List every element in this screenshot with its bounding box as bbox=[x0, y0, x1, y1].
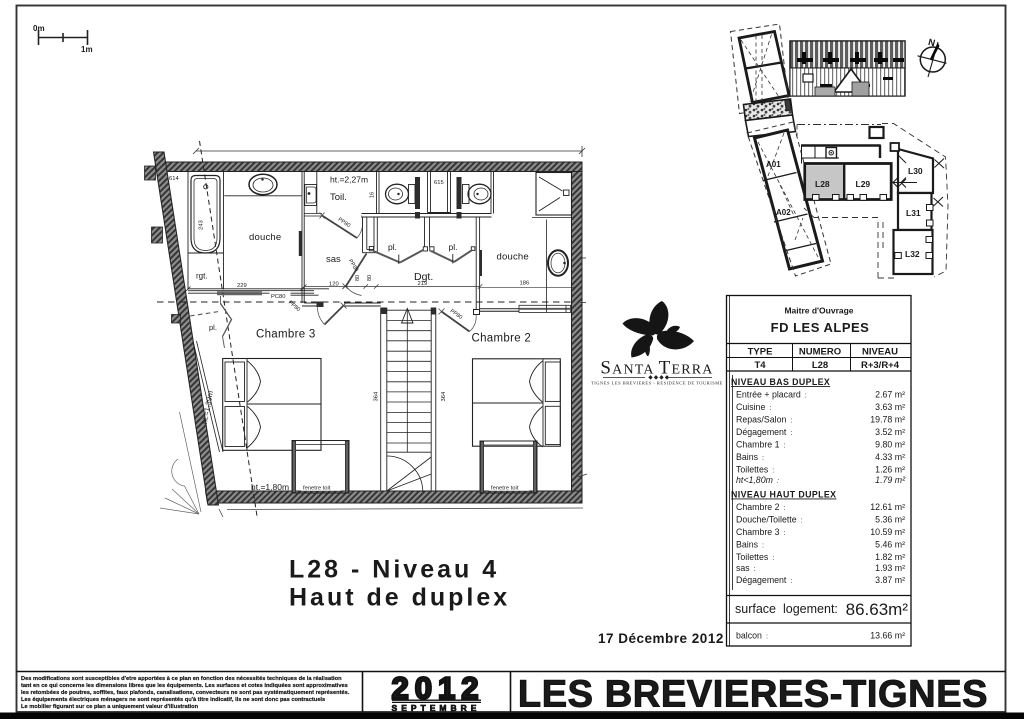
svg-text:rgt.: rgt. bbox=[196, 272, 208, 281]
svg-text:FD LES ALPES: FD LES ALPES bbox=[771, 320, 870, 335]
svg-text:R+3/R+4: R+3/R+4 bbox=[861, 360, 900, 371]
svg-text:3.52 m²: 3.52 m² bbox=[875, 427, 905, 437]
svg-text:Douche/Toilette:: Douche/Toilette: bbox=[736, 515, 803, 525]
svg-text:186: 186 bbox=[520, 281, 530, 287]
svg-text:19.78 m²: 19.78 m² bbox=[870, 415, 905, 425]
svg-text:TIGNES LES BREVIERES - RESIDEN: TIGNES LES BREVIERES - RESIDENCE DE TOUR… bbox=[591, 381, 723, 386]
svg-text:douche: douche bbox=[249, 232, 281, 243]
svg-text:TYPE: TYPE bbox=[748, 347, 773, 358]
svg-text:Haut de duplex: Haut de duplex bbox=[289, 584, 510, 612]
svg-text:10.59 m²: 10.59 m² bbox=[870, 527, 905, 537]
svg-text:3.87 m²: 3.87 m² bbox=[875, 575, 905, 585]
svg-text:Le mobilier figurant sur ce pl: Le mobilier figurant sur ce plan a uniqu… bbox=[21, 704, 199, 710]
svg-text:Dégagement:: Dégagement: bbox=[736, 575, 792, 585]
svg-text:243: 243 bbox=[199, 220, 205, 230]
svg-text:L30: L30 bbox=[908, 166, 923, 176]
svg-text:80: 80 bbox=[367, 275, 373, 281]
svg-text:Maitre d'Ouvrage: Maitre d'Ouvrage bbox=[784, 306, 853, 316]
svg-text:Chambre 2:: Chambre 2: bbox=[736, 502, 786, 512]
svg-text:1.93 m²: 1.93 m² bbox=[875, 563, 905, 573]
svg-text:L28 - Niveau 4: L28 - Niveau 4 bbox=[289, 556, 499, 584]
svg-text:4.33 m²: 4.33 m² bbox=[875, 452, 905, 462]
svg-text:fenetre toit: fenetre toit bbox=[491, 486, 519, 492]
svg-text:A02: A02 bbox=[776, 208, 791, 217]
svg-text:L29: L29 bbox=[856, 179, 871, 189]
svg-text:Chambre 2: Chambre 2 bbox=[472, 333, 532, 345]
svg-text:Chambre 3: Chambre 3 bbox=[256, 329, 316, 341]
svg-text:120: 120 bbox=[329, 282, 339, 288]
svg-text:sas: sas bbox=[326, 254, 341, 265]
svg-text:615: 615 bbox=[434, 180, 444, 186]
svg-text:Toil.: Toil. bbox=[330, 192, 347, 203]
svg-text:LES BREVIERES-TIGNES: LES BREVIERES-TIGNES bbox=[518, 674, 988, 716]
svg-text:NUMERO: NUMERO bbox=[799, 347, 841, 358]
svg-text:L31: L31 bbox=[906, 208, 921, 218]
svg-text:surfacelogement:: surfacelogement: bbox=[735, 602, 838, 616]
svg-text:219: 219 bbox=[418, 281, 428, 287]
svg-text:L28: L28 bbox=[815, 179, 830, 189]
svg-text:PC80: PC80 bbox=[271, 294, 286, 300]
svg-text:1m: 1m bbox=[81, 45, 93, 54]
svg-text:Chambre 3:: Chambre 3: bbox=[736, 527, 786, 537]
svg-text:5.36 m²: 5.36 m² bbox=[875, 515, 905, 525]
svg-text:17 Décembre 2012: 17 Décembre 2012 bbox=[598, 631, 724, 646]
svg-text:T4: T4 bbox=[754, 360, 766, 371]
svg-text:tant en ce qui concerne les di: tant en ce qui concerne les dimensions l… bbox=[21, 683, 348, 689]
svg-text:pl.: pl. bbox=[449, 242, 458, 252]
svg-text:fenetre toit: fenetre toit bbox=[303, 486, 331, 492]
svg-text:13.66 m²: 13.66 m² bbox=[870, 631, 905, 641]
svg-text:NIVEAU: NIVEAU bbox=[862, 347, 898, 358]
svg-text:L28: L28 bbox=[812, 360, 828, 371]
svg-text:614: 614 bbox=[169, 176, 179, 182]
svg-text:pl.: pl. bbox=[209, 323, 217, 332]
svg-text:9.80 m²: 9.80 m² bbox=[875, 440, 905, 450]
svg-text:16: 16 bbox=[370, 192, 376, 198]
svg-text:douche: douche bbox=[497, 252, 529, 263]
svg-text:229: 229 bbox=[237, 283, 247, 289]
svg-text:364: 364 bbox=[441, 391, 447, 401]
svg-text:Chambre 1:: Chambre 1: bbox=[736, 440, 786, 450]
svg-text:les retombées de poutres, soff: les retombées de poutres, soffites, faux… bbox=[21, 690, 350, 696]
svg-text:12.61 m²: 12.61 m² bbox=[870, 502, 905, 512]
svg-text:1.79 m²: 1.79 m² bbox=[875, 475, 906, 485]
svg-text:Des modifications sont suscept: Des modifications sont susceptibles d'et… bbox=[21, 676, 342, 682]
svg-text:ht.=1,80m: ht.=1,80m bbox=[251, 482, 289, 492]
svg-text:Repas/Salon:: Repas/Salon: bbox=[736, 415, 792, 425]
svg-text:Dégagement:: Dégagement: bbox=[736, 427, 792, 437]
svg-text:Les équipements électriques mé: Les équipements électriques ménagers ne … bbox=[21, 697, 325, 703]
svg-text:Entrée + placard:: Entrée + placard: bbox=[736, 390, 807, 400]
svg-text:5.46 m²: 5.46 m² bbox=[875, 540, 905, 550]
svg-text:1.82 m²: 1.82 m² bbox=[875, 552, 905, 562]
svg-text:1.26 m²: 1.26 m² bbox=[875, 465, 905, 475]
svg-text:ht.=2,27m: ht.=2,27m bbox=[330, 175, 368, 185]
svg-text:L32: L32 bbox=[905, 249, 920, 259]
svg-text:3.63 m²: 3.63 m² bbox=[875, 402, 905, 412]
svg-text:NIVEAU HAUT DUPLEX: NIVEAU HAUT DUPLEX bbox=[731, 490, 836, 500]
svg-text:SEPTEMBRE: SEPTEMBRE bbox=[392, 703, 481, 713]
svg-text:2.67 m²: 2.67 m² bbox=[875, 390, 905, 400]
svg-text:pl.: pl. bbox=[388, 242, 397, 252]
svg-text:ht<1,80m:: ht<1,80m: bbox=[736, 475, 779, 485]
svg-text:80: 80 bbox=[355, 275, 361, 281]
svg-text:NIVEAU BAS DUPLEX: NIVEAU BAS DUPLEX bbox=[731, 377, 830, 387]
svg-text:364: 364 bbox=[374, 391, 380, 401]
svg-text:A01: A01 bbox=[766, 160, 781, 169]
svg-text:0m: 0m bbox=[33, 24, 45, 33]
svg-text:86.63m²: 86.63m² bbox=[846, 600, 909, 619]
